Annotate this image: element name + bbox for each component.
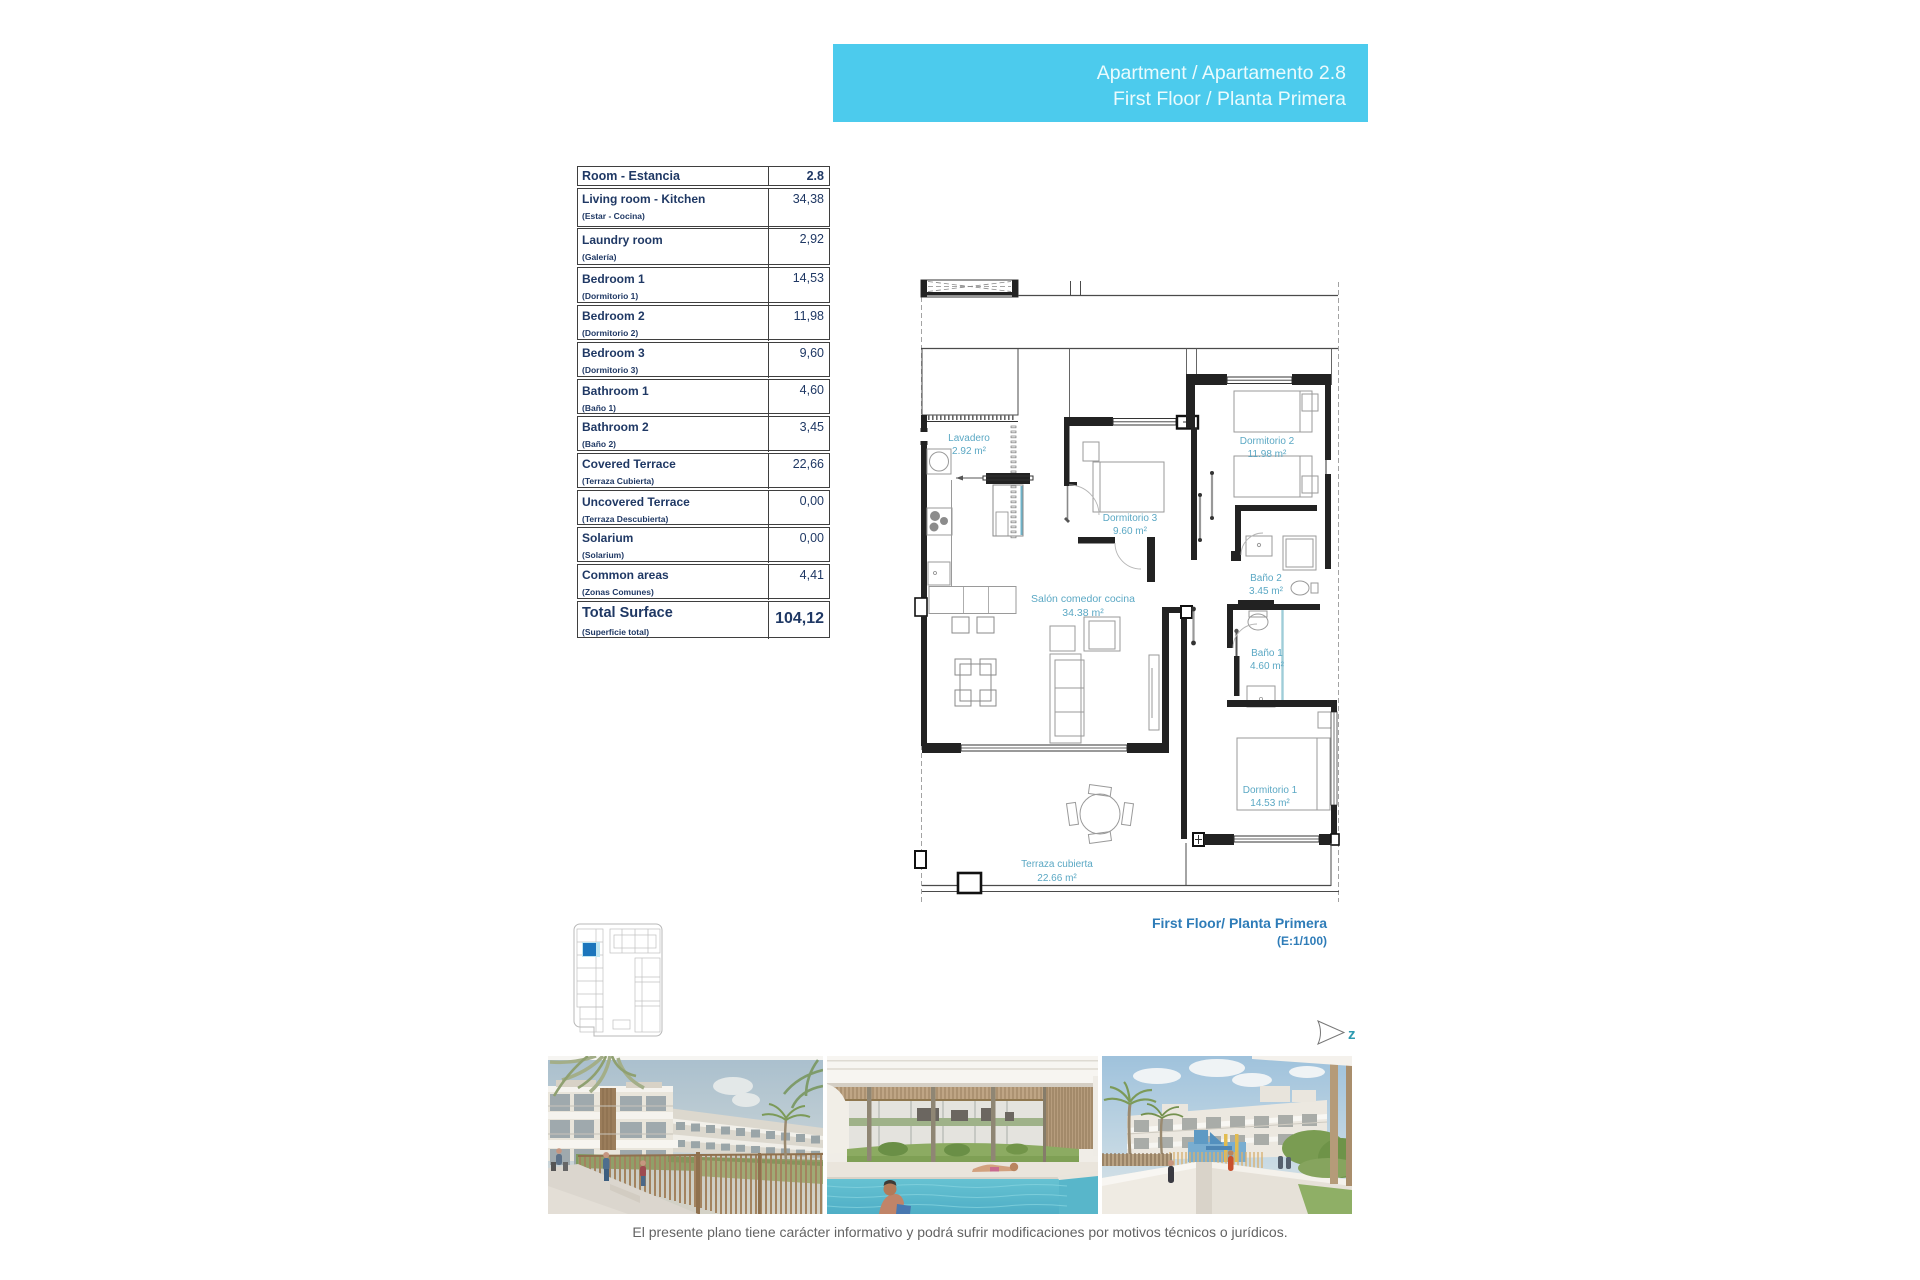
svg-text:3.45 m²: 3.45 m² [1249, 586, 1284, 597]
svg-text:9.60 m²: 9.60 m² [1113, 526, 1148, 537]
svg-text:z: z [1348, 1026, 1356, 1043]
svg-text:Dormitorio 2: Dormitorio 2 [1240, 436, 1295, 447]
svg-text:Dormitorio 1: Dormitorio 1 [1243, 785, 1298, 796]
svg-text:2.92 m²: 2.92 m² [952, 446, 987, 457]
svg-text:22.66 m²: 22.66 m² [1037, 873, 1077, 884]
svg-text:11.98 m²: 11.98 m² [1248, 449, 1287, 460]
svg-text:Salón comedor cocina: Salón comedor cocina [1031, 593, 1135, 605]
svg-text:Baño 2: Baño 2 [1250, 573, 1282, 584]
svg-text:Lavadero: Lavadero [948, 433, 990, 444]
svg-text:4.60 m²: 4.60 m² [1250, 661, 1285, 672]
svg-text:Dormitorio 3: Dormitorio 3 [1103, 513, 1158, 524]
svg-text:14.53 m²: 14.53 m² [1250, 798, 1290, 809]
svg-text:Terraza cubierta: Terraza cubierta [1021, 859, 1093, 870]
svg-text:Baño 1: Baño 1 [1251, 648, 1283, 659]
